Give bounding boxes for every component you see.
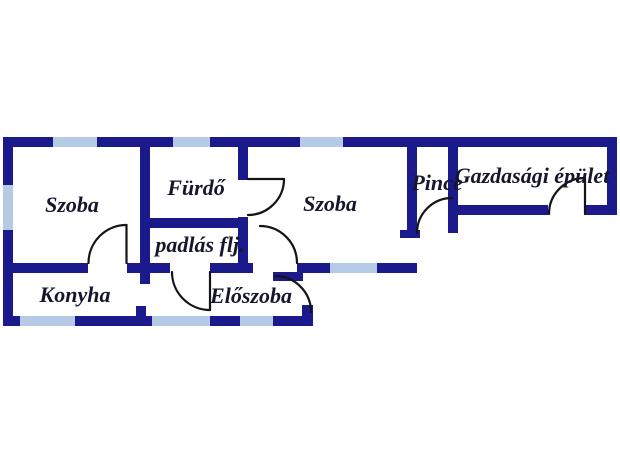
window-segment (53, 137, 97, 147)
wall-segment (3, 137, 13, 185)
window-segment (173, 137, 210, 147)
door-arc (248, 179, 284, 215)
wall-segment (453, 205, 548, 215)
top-wall (3, 137, 617, 147)
window-segment (152, 316, 210, 326)
room-label-szoba-right: Szoba (303, 191, 357, 216)
wall-segment (210, 316, 240, 326)
wall-segment (97, 137, 173, 147)
wall-segment (238, 137, 248, 180)
bottom-wall (3, 305, 313, 326)
wall-segment (343, 137, 617, 147)
wall-segment (140, 218, 248, 228)
room-label-konyha: Konyha (39, 282, 111, 307)
window-segment (3, 185, 13, 230)
door-arc (89, 225, 127, 263)
floor-plan-drawing: Szoba Fürdő padlás flj. Szoba Pince Gazd… (0, 0, 620, 465)
room-label-szoba-left: Szoba (45, 192, 99, 217)
wall-segment (3, 230, 13, 326)
door-arc (260, 226, 297, 263)
wall-segment (3, 263, 88, 273)
floor-plan: Szoba Fürdő padlás flj. Szoba Pince Gazd… (0, 0, 620, 465)
room-label-furdo: Fürdő (166, 175, 226, 200)
room-label-padlas: padlás flj. (153, 232, 244, 257)
wall-segment (585, 205, 617, 215)
left-wall (3, 137, 13, 326)
door-arc (417, 198, 452, 233)
window-segment (20, 316, 75, 326)
wall-segment (140, 137, 150, 272)
door-arc (172, 272, 210, 310)
room-label-gazdasagi: Gazdasági épület (455, 163, 611, 188)
wall-segment (3, 316, 20, 326)
wall-segment (297, 263, 330, 273)
wall-segment (127, 263, 170, 273)
window-segment (300, 137, 343, 147)
window-segment (240, 316, 273, 326)
room-labels: Szoba Fürdő padlás flj. Szoba Pince Gazd… (39, 163, 611, 308)
room-label-eloszoba: Előszoba (209, 283, 292, 308)
wall-segment (210, 137, 300, 147)
wall-segment (210, 263, 253, 273)
wall-segment (377, 263, 417, 273)
wall-stub (140, 273, 150, 284)
wall-stub (136, 306, 146, 318)
window-segment (330, 263, 377, 273)
